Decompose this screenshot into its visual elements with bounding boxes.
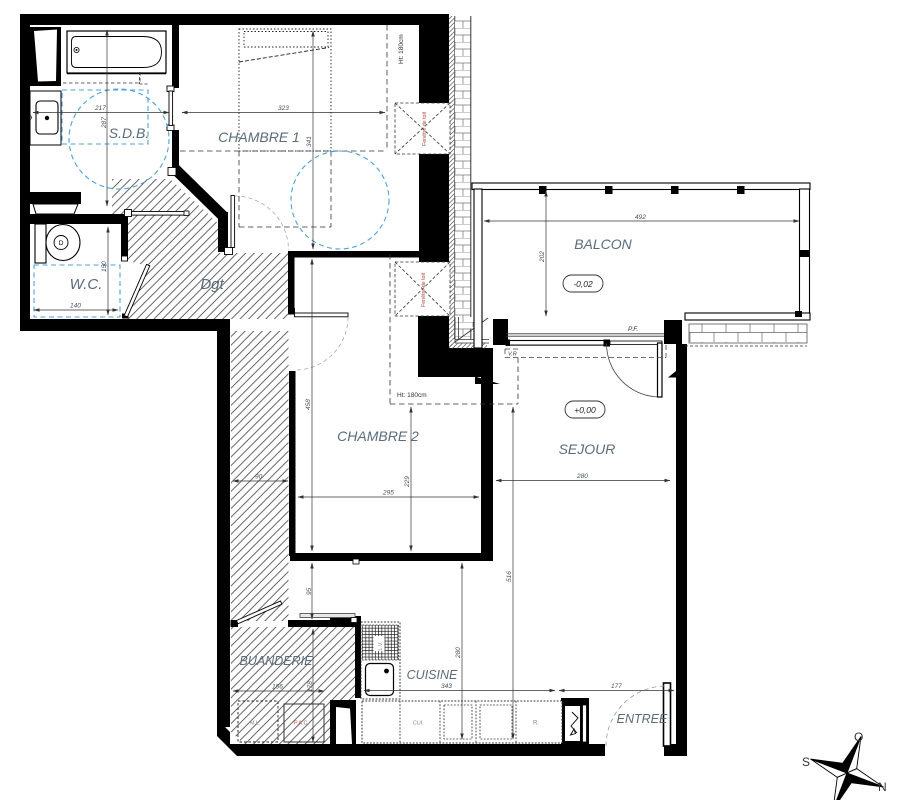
svg-text:Ht: 180cm: Ht: 180cm xyxy=(398,34,405,64)
svg-text:516: 516 xyxy=(506,571,513,582)
svg-text:S: S xyxy=(802,755,810,769)
svg-text:492: 492 xyxy=(635,214,646,221)
svg-text:P.A.C: P.A.C xyxy=(294,721,307,727)
svg-text:CUISINE: CUISINE xyxy=(407,668,458,682)
svg-text:Fenêtre de toit: Fenêtre de toit xyxy=(422,111,428,146)
svg-text:ENTREE: ENTREE xyxy=(617,712,668,726)
svg-text:P.F.: P.F. xyxy=(628,326,638,333)
svg-text:BALCON: BALCON xyxy=(574,236,632,252)
svg-text:W.C.: W.C. xyxy=(70,276,103,293)
svg-text:156: 156 xyxy=(272,684,283,691)
svg-text:CHAMBRE 1: CHAMBRE 1 xyxy=(218,129,300,145)
svg-text:202: 202 xyxy=(539,251,546,263)
svg-text:O: O xyxy=(854,730,863,744)
svg-text:S.D.B.: S.D.B. xyxy=(109,125,149,141)
svg-text:280: 280 xyxy=(576,473,588,480)
svg-text:458: 458 xyxy=(305,399,312,410)
svg-text:Dgt: Dgt xyxy=(200,276,224,293)
svg-text:178: 178 xyxy=(307,681,314,692)
svg-text:295: 295 xyxy=(382,490,394,497)
svg-text:SEJOUR: SEJOUR xyxy=(559,441,616,457)
svg-text:V.R: V.R xyxy=(508,352,517,358)
svg-text:CHAMBRE 2: CHAMBRE 2 xyxy=(337,428,419,444)
svg-text:R.: R. xyxy=(533,721,539,727)
svg-text:L.V.: L.V. xyxy=(378,642,384,651)
svg-text:D: D xyxy=(59,240,64,247)
svg-text:140: 140 xyxy=(70,303,81,310)
svg-text:CUI.: CUI. xyxy=(413,721,424,727)
svg-text:-0,02: -0,02 xyxy=(573,279,593,289)
svg-text:N: N xyxy=(878,780,887,794)
svg-text:95: 95 xyxy=(306,587,313,595)
svg-text:M.L.: M.L. xyxy=(250,721,260,727)
svg-text:217: 217 xyxy=(94,105,106,112)
svg-text:Ht: 180cm: Ht: 180cm xyxy=(397,392,427,399)
svg-text:343: 343 xyxy=(441,683,452,690)
svg-text:+0,00: +0,00 xyxy=(574,405,596,415)
svg-text:341: 341 xyxy=(306,136,313,147)
svg-text:177: 177 xyxy=(611,683,622,690)
svg-text:287: 287 xyxy=(101,117,108,129)
svg-text:323: 323 xyxy=(278,105,289,112)
svg-text:150: 150 xyxy=(101,261,108,272)
svg-text:280: 280 xyxy=(455,647,462,659)
svg-text:229: 229 xyxy=(404,476,411,488)
svg-text:Fenêtre de toit: Fenêtre de toit xyxy=(421,272,427,307)
svg-text:90: 90 xyxy=(255,474,263,481)
svg-text:BUANDERIE: BUANDERIE xyxy=(240,654,314,668)
